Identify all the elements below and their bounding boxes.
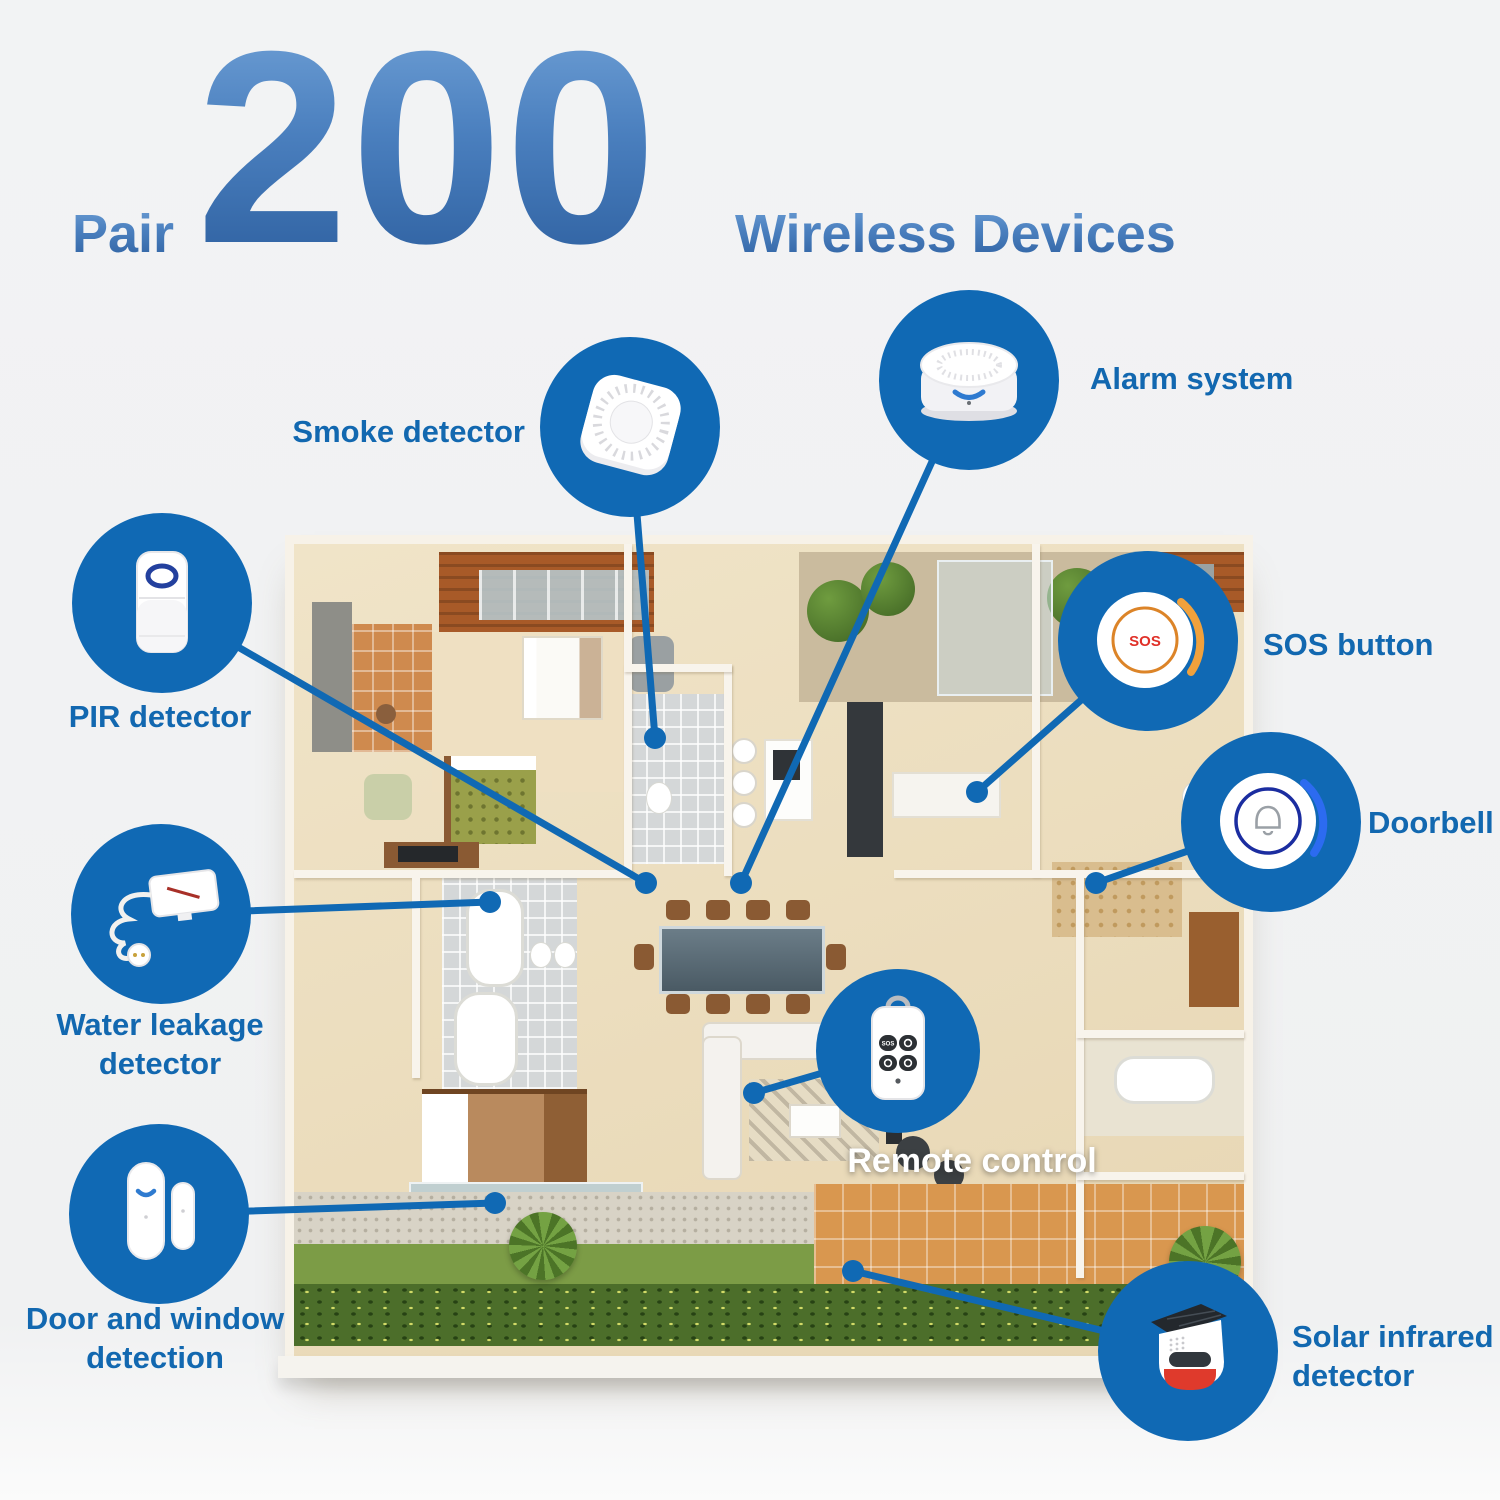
bush [807, 580, 869, 642]
infographic-canvas: Pair 200 Wireless Devices [0, 0, 1500, 1500]
title-wireless-devices: Wireless Devices [735, 203, 1176, 265]
wall [1032, 544, 1040, 876]
wall [724, 664, 732, 876]
water-leakage-badge [71, 824, 251, 1004]
label-line: SOS button [1263, 626, 1433, 665]
pir-detector-icon [97, 538, 227, 668]
label-alarm-system: Alarm system [1090, 360, 1293, 399]
label-line: Water leakage [20, 1006, 300, 1045]
alarm-system-icon [904, 315, 1034, 445]
toilet-pair [530, 942, 552, 968]
dining-chair [826, 944, 846, 970]
gray-wall-panel [312, 602, 352, 752]
bar-stool [731, 770, 757, 796]
bar-stool [731, 738, 757, 764]
wall [412, 878, 420, 1078]
master-bed [522, 636, 603, 720]
wall [624, 544, 632, 874]
sos-button-face-text: SOS [1129, 633, 1161, 650]
door-window-badge [69, 1124, 249, 1304]
toilet-hall [646, 782, 672, 814]
label-sos-button: SOS button [1263, 626, 1433, 665]
dining-chair [786, 994, 810, 1014]
bathtub-2 [454, 992, 518, 1086]
hallway-tiles [629, 694, 724, 864]
bar-stool [731, 802, 757, 828]
bathtub-right [1114, 1056, 1215, 1104]
fridge-column [847, 702, 883, 857]
door-window-icon [94, 1149, 224, 1279]
palm-tree [509, 1212, 577, 1280]
label-line: Solar infrared [1292, 1318, 1494, 1357]
wall [1076, 878, 1084, 1278]
sos-button-icon: SOS [1083, 576, 1213, 706]
dining-chair [786, 900, 810, 920]
label-water-leakage: Water leakage detector [20, 1006, 300, 1084]
bed-brown [422, 1089, 587, 1182]
kitchen-counter [892, 772, 1001, 818]
cooktop [773, 750, 800, 780]
remote-control-icon: SOS [838, 991, 958, 1111]
label-line: Doorbell [1368, 804, 1494, 843]
dining-chair [746, 900, 770, 920]
title-number-200: 200 [196, 18, 659, 278]
label-line: PIR detector [30, 698, 290, 737]
label-line: Door and window [10, 1300, 300, 1339]
label-pir-detector: PIR detector [30, 698, 290, 737]
label-remote-control: Remote control [812, 1140, 1132, 1183]
solar-infrared-badge [1098, 1261, 1278, 1441]
balcony-top-left [352, 624, 432, 752]
label-line: Remote control [812, 1140, 1132, 1183]
label-door-window: Door and window detection [10, 1300, 300, 1378]
dining-chair [666, 994, 690, 1014]
label-line: Smoke detector [230, 413, 525, 452]
wall [894, 870, 1244, 878]
bathtub-1 [466, 889, 524, 987]
label-line: detector [20, 1045, 300, 1084]
sofa-side [702, 1036, 742, 1180]
label-line: Alarm system [1090, 360, 1293, 399]
doorbell-badge [1181, 732, 1361, 912]
label-doorbell: Doorbell [1368, 804, 1494, 843]
wall [294, 870, 632, 878]
remote-sos-key-text: SOS [882, 1042, 895, 1048]
smoke-detector-badge [540, 337, 720, 517]
tv-screen [398, 846, 458, 862]
dining-table-glass [659, 926, 825, 994]
label-line: detection [10, 1339, 300, 1378]
pir-detector-badge [72, 513, 252, 693]
bed-olive-pattern [451, 774, 529, 844]
coffee-table [789, 1104, 841, 1138]
dining-chair [634, 944, 654, 970]
solar-infrared-icon [1123, 1286, 1253, 1416]
wardrobe [1189, 912, 1239, 1007]
toilet-pair [554, 942, 576, 968]
balcony-stool [376, 704, 396, 724]
dining-chair [706, 900, 730, 920]
dining-chair [706, 994, 730, 1014]
bush [861, 562, 915, 616]
title-pair: Pair [72, 203, 174, 265]
dining-chair [666, 900, 690, 920]
water-leakage-icon [91, 849, 231, 979]
smoke-detector-icon [565, 362, 695, 492]
wall [1076, 1030, 1244, 1038]
alarm-system-badge [879, 290, 1059, 470]
label-smoke-detector: Smoke detector [230, 413, 525, 452]
doorbell-icon [1206, 757, 1336, 887]
dining-chair [746, 994, 770, 1014]
remote-control-badge: SOS [816, 969, 980, 1133]
sos-button-badge: SOS [1058, 551, 1238, 731]
armchair-green [364, 774, 412, 820]
label-line: detector [1292, 1357, 1494, 1396]
wall [624, 664, 732, 672]
label-solar-infrared: Solar infrared detector [1292, 1318, 1494, 1396]
